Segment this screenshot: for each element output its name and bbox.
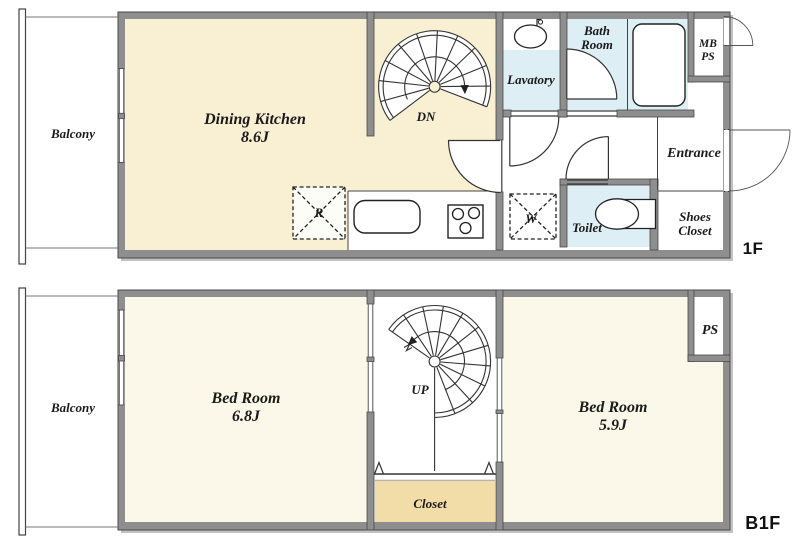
svg-text:Entrance: Entrance — [666, 146, 721, 161]
svg-text:R: R — [314, 205, 324, 220]
svg-text:Dining Kitchen: Dining Kitchen — [203, 111, 306, 128]
svg-text:PS: PS — [702, 323, 719, 338]
svg-text:8.6J: 8.6J — [241, 129, 270, 146]
svg-text:Room: Room — [580, 37, 613, 52]
svg-text:Lavatory: Lavatory — [506, 72, 555, 87]
svg-text:5.9J: 5.9J — [599, 417, 628, 434]
svg-text:PS: PS — [701, 51, 714, 63]
svg-text:Balcony: Balcony — [50, 400, 95, 415]
svg-text:Closet: Closet — [413, 496, 447, 511]
svg-text:UP: UP — [411, 382, 429, 397]
svg-text:MB: MB — [698, 38, 717, 50]
svg-text:Balcony: Balcony — [50, 126, 95, 141]
svg-text:DN: DN — [416, 109, 436, 124]
svg-text:6.8J: 6.8J — [232, 408, 261, 425]
svg-text:Shoes: Shoes — [679, 209, 711, 224]
svg-text:Bath: Bath — [583, 23, 610, 38]
svg-text:B1F: B1F — [745, 513, 781, 533]
svg-text:Closet: Closet — [678, 223, 712, 238]
svg-text:Bed Room: Bed Room — [211, 390, 281, 407]
svg-text:Toilet: Toilet — [572, 220, 602, 235]
svg-text:1F: 1F — [743, 239, 764, 258]
svg-text:W: W — [525, 211, 538, 226]
svg-text:Bed Room: Bed Room — [578, 399, 648, 416]
